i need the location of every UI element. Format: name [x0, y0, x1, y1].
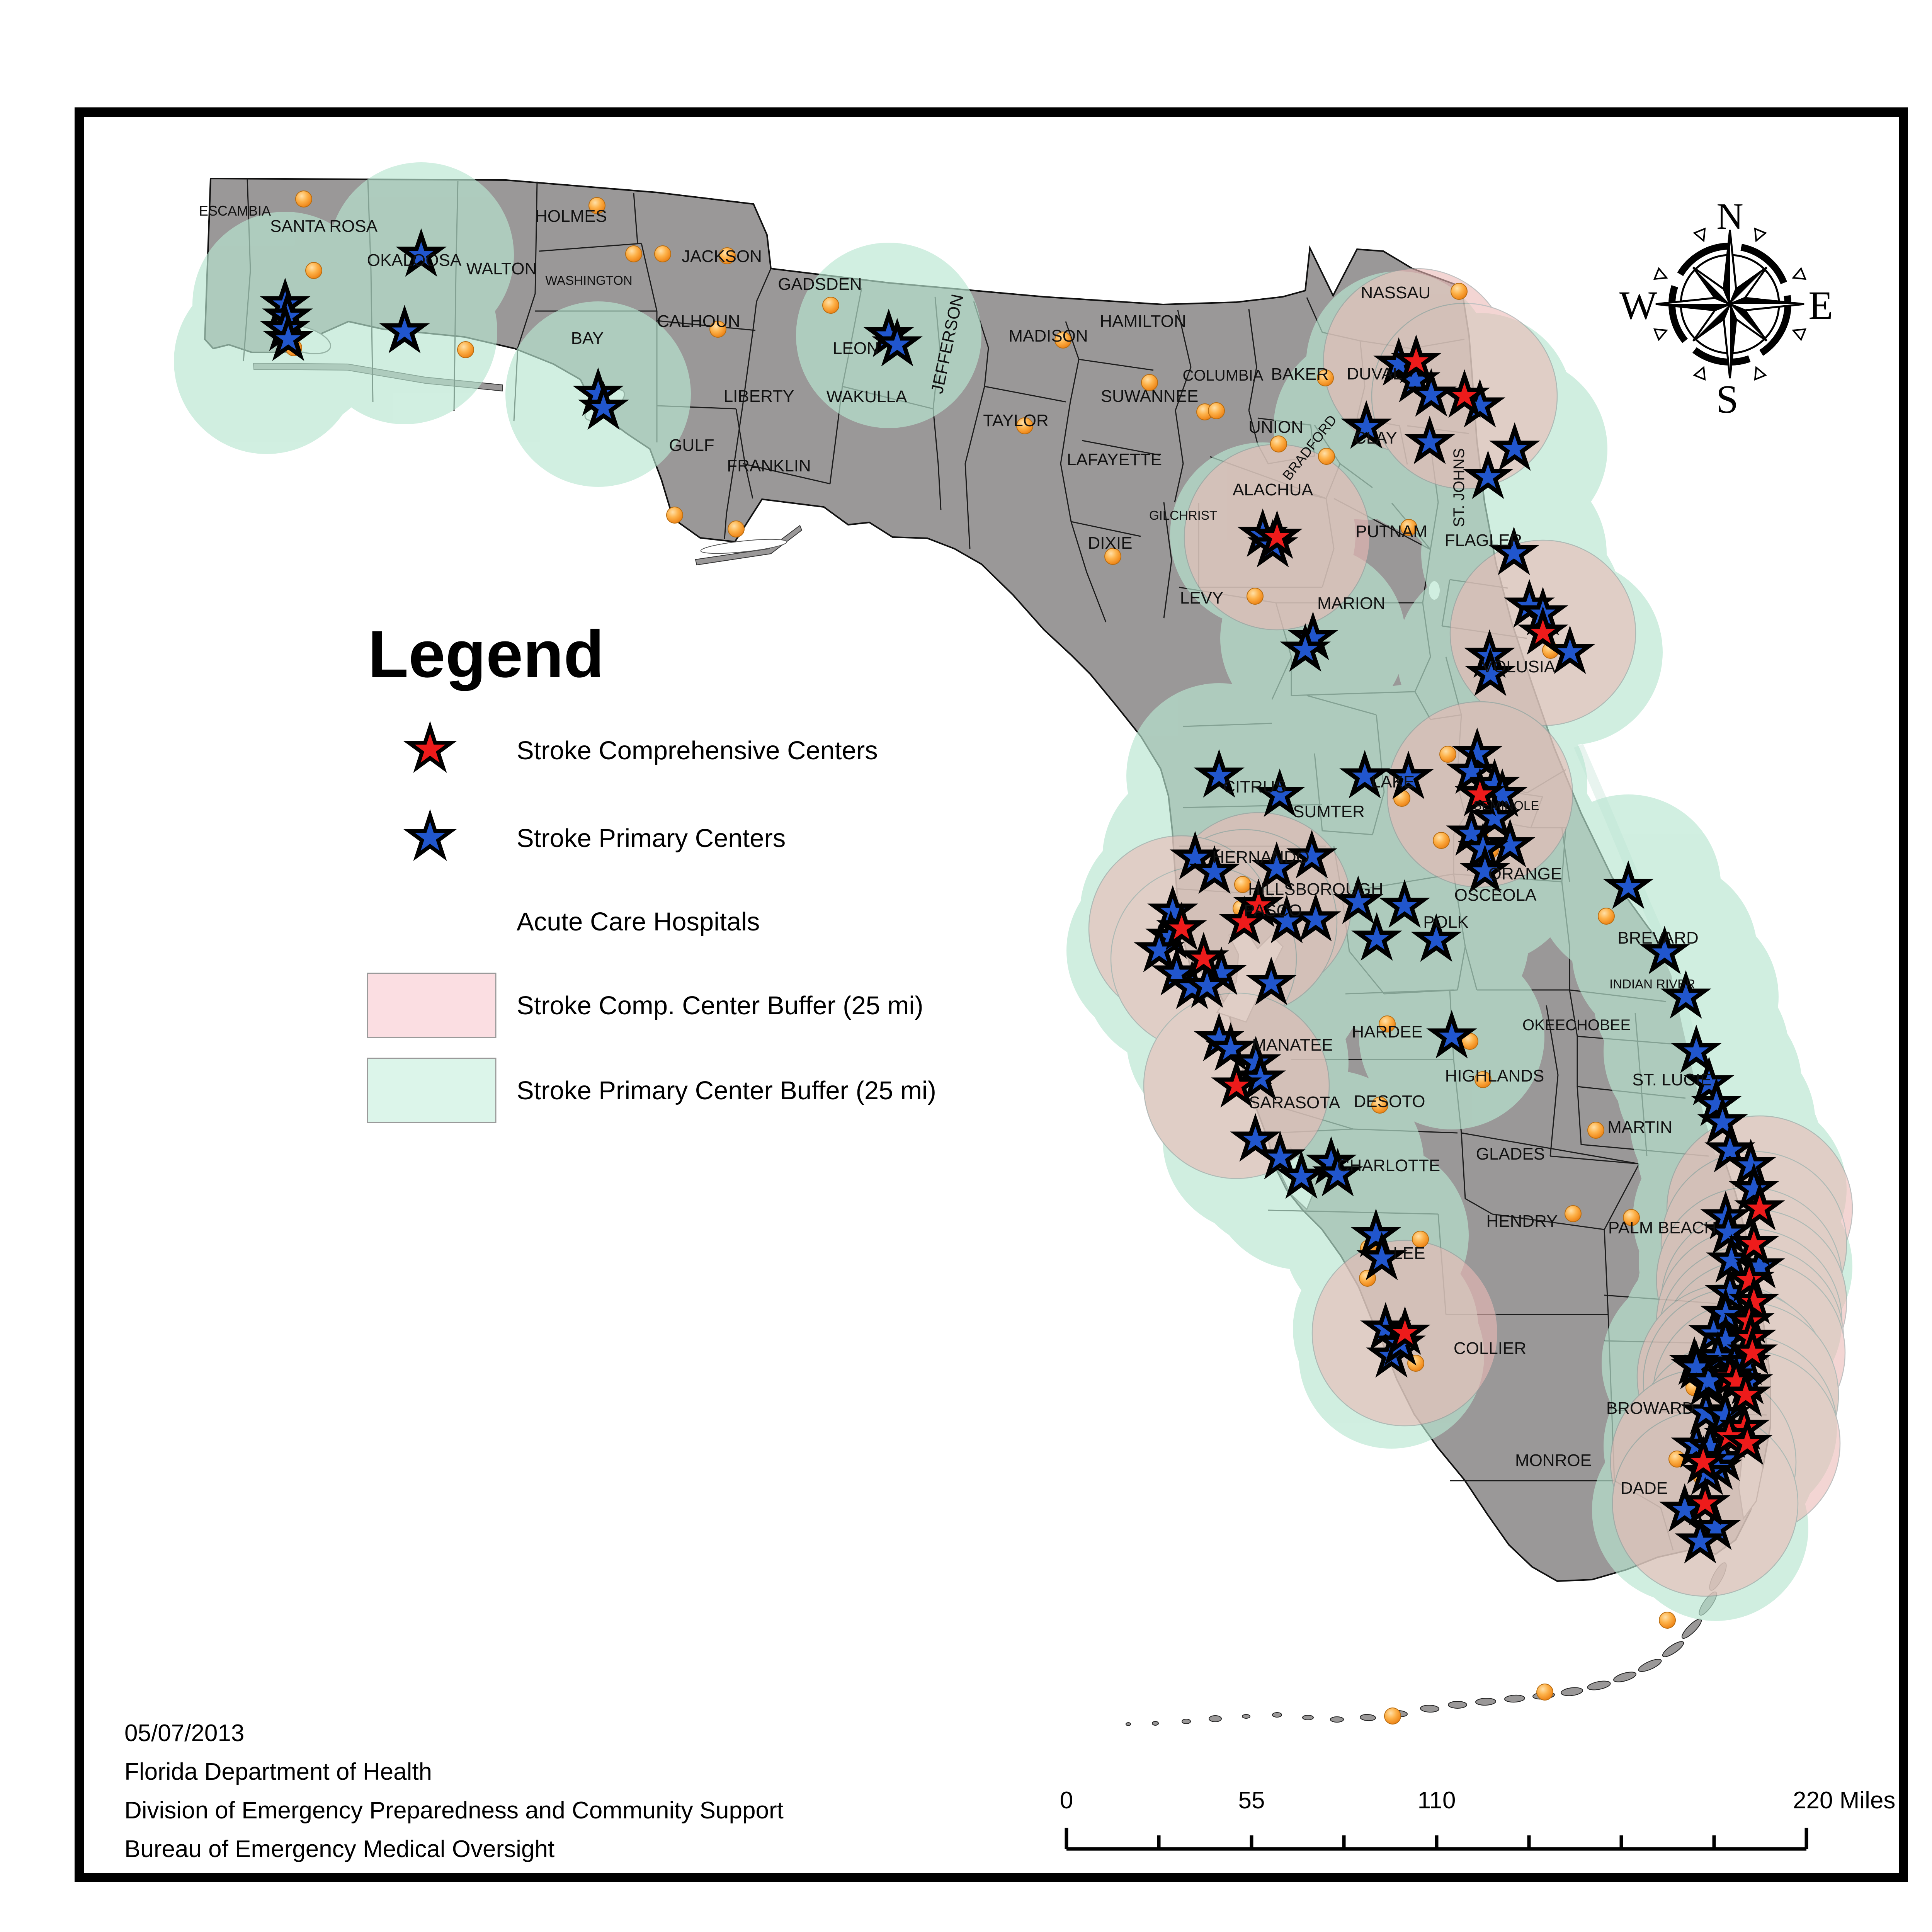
svg-text:CALHOUN: CALHOUN: [657, 312, 740, 331]
svg-text:DIXIE: DIXIE: [1088, 534, 1133, 553]
svg-text:VOLUSIA: VOLUSIA: [1482, 657, 1556, 676]
svg-text:OSCEOLA: OSCEOLA: [1454, 886, 1537, 905]
svg-text:POLK: POLK: [1423, 913, 1468, 932]
svg-text:INDIAN RIVER: INDIAN RIVER: [1609, 977, 1695, 991]
svg-text:FLAGLER: FLAGLER: [1445, 531, 1522, 550]
svg-text:DADE: DADE: [1621, 1479, 1668, 1498]
svg-text:LAKE: LAKE: [1371, 772, 1415, 791]
svg-text:ESCAMBIA: ESCAMBIA: [199, 203, 271, 219]
svg-text:Florida Department of Health: Florida Department of Health: [124, 1759, 432, 1785]
svg-text:CHARLOTTE: CHARLOTTE: [1337, 1156, 1440, 1175]
svg-text:Bureau of Emergency Medical Ov: Bureau of Emergency Medical Oversight: [124, 1836, 554, 1862]
svg-text:GILCHRIST: GILCHRIST: [1149, 508, 1217, 522]
svg-text:WALTON: WALTON: [466, 259, 537, 278]
svg-text:E: E: [1808, 283, 1833, 328]
svg-text:COLUMBIA: COLUMBIA: [1183, 367, 1264, 384]
svg-text:DESOTO: DESOTO: [1354, 1092, 1425, 1111]
svg-text:W: W: [1619, 283, 1657, 328]
svg-text:JACKSON: JACKSON: [682, 247, 762, 266]
svg-text:PUTNAM: PUTNAM: [1355, 522, 1427, 541]
svg-text:MADISON: MADISON: [1009, 327, 1088, 345]
svg-text:S: S: [1716, 377, 1738, 422]
svg-text:BAKER: BAKER: [1271, 365, 1328, 384]
svg-text:ORANGE: ORANGE: [1488, 864, 1562, 883]
svg-text:MARION: MARION: [1317, 594, 1385, 613]
svg-text:OKALOOSA: OKALOOSA: [367, 251, 462, 270]
svg-text:ST. JOHNS: ST. JOHNS: [1451, 448, 1468, 527]
svg-text:GADSDEN: GADSDEN: [778, 275, 862, 294]
svg-text:SUWANNEE: SUWANNEE: [1101, 387, 1199, 406]
svg-text:LEE: LEE: [1393, 1244, 1425, 1263]
svg-text:SUMTER: SUMTER: [1293, 802, 1365, 821]
svg-text:SANTA ROSA: SANTA ROSA: [270, 217, 378, 236]
svg-text:ST. LUCIE: ST. LUCIE: [1632, 1070, 1711, 1089]
svg-text:220 Miles: 220 Miles: [1793, 1787, 1895, 1814]
svg-text:HARDEE: HARDEE: [1352, 1022, 1422, 1041]
svg-text:PALM BEACH: PALM BEACH: [1608, 1218, 1716, 1237]
svg-text:MONROE: MONROE: [1515, 1451, 1592, 1470]
svg-text:ALACHUA: ALACHUA: [1233, 480, 1313, 499]
svg-text:NASSAU: NASSAU: [1361, 283, 1431, 302]
svg-text:COLLIER: COLLIER: [1454, 1339, 1526, 1358]
svg-text:05/07/2013: 05/07/2013: [124, 1720, 244, 1747]
svg-text:HERNANDO: HERNANDO: [1212, 848, 1310, 867]
svg-text:WASHINGTON: WASHINGTON: [545, 273, 633, 287]
svg-text:0: 0: [1060, 1787, 1073, 1814]
svg-text:HIGHLANDS: HIGHLANDS: [1445, 1066, 1544, 1085]
svg-text:Acute Care Hospitals: Acute Care Hospitals: [517, 907, 760, 936]
svg-text:MANATEE: MANATEE: [1252, 1036, 1333, 1054]
svg-text:SEMINOLE: SEMINOLE: [1473, 798, 1539, 813]
svg-text:55: 55: [1238, 1787, 1265, 1814]
svg-text:BAY: BAY: [571, 329, 604, 348]
svg-text:OKEECHOBEE: OKEECHOBEE: [1522, 1017, 1631, 1034]
svg-text:MARTIN: MARTIN: [1607, 1118, 1672, 1137]
svg-text:LEON: LEON: [833, 339, 879, 358]
svg-text:GLADES: GLADES: [1476, 1145, 1545, 1163]
svg-text:FRANKLIN: FRANKLIN: [727, 456, 811, 475]
svg-text:110: 110: [1418, 1787, 1456, 1814]
svg-text:LEVY: LEVY: [1180, 588, 1224, 607]
svg-text:Division of Emergency Prepared: Division of Emergency Preparedness and C…: [124, 1797, 784, 1824]
svg-text:LIBERTY: LIBERTY: [724, 387, 794, 406]
svg-text:HENDRY: HENDRY: [1486, 1212, 1558, 1231]
svg-text:WAKULLA: WAKULLA: [827, 387, 907, 406]
svg-text:SARASOTA: SARASOTA: [1249, 1093, 1340, 1112]
svg-text:Legend: Legend: [368, 617, 604, 691]
svg-text:LAFAYETTE: LAFAYETTE: [1067, 450, 1162, 469]
svg-text:Stroke Primary Centers: Stroke Primary Centers: [517, 824, 786, 853]
svg-text:DUVAL: DUVAL: [1347, 364, 1402, 383]
svg-text:GULF: GULF: [669, 436, 714, 455]
svg-text:Stroke Comprehensive Centers: Stroke Comprehensive Centers: [517, 736, 878, 765]
svg-text:HAMILTON: HAMILTON: [1100, 312, 1186, 331]
svg-text:TAYLOR: TAYLOR: [983, 411, 1049, 430]
svg-text:Stroke Comp. Center Buffer (25: Stroke Comp. Center Buffer (25 mi): [517, 991, 923, 1020]
svg-text:N: N: [1716, 196, 1743, 237]
svg-text:PASCO: PASCO: [1244, 901, 1302, 920]
svg-text:CLAY: CLAY: [1354, 429, 1397, 447]
svg-text:HILLSBOROUGH: HILLSBOROUGH: [1248, 880, 1383, 899]
svg-text:BREVARD: BREVARD: [1617, 929, 1698, 947]
svg-text:UNION: UNION: [1248, 418, 1303, 437]
svg-text:HOLMES: HOLMES: [535, 207, 607, 226]
svg-text:BROWARD: BROWARD: [1606, 1399, 1694, 1418]
svg-text:CITRUS: CITRUS: [1223, 777, 1286, 796]
svg-text:Stroke Primary Center Buffer (: Stroke Primary Center Buffer (25 mi): [517, 1076, 936, 1105]
